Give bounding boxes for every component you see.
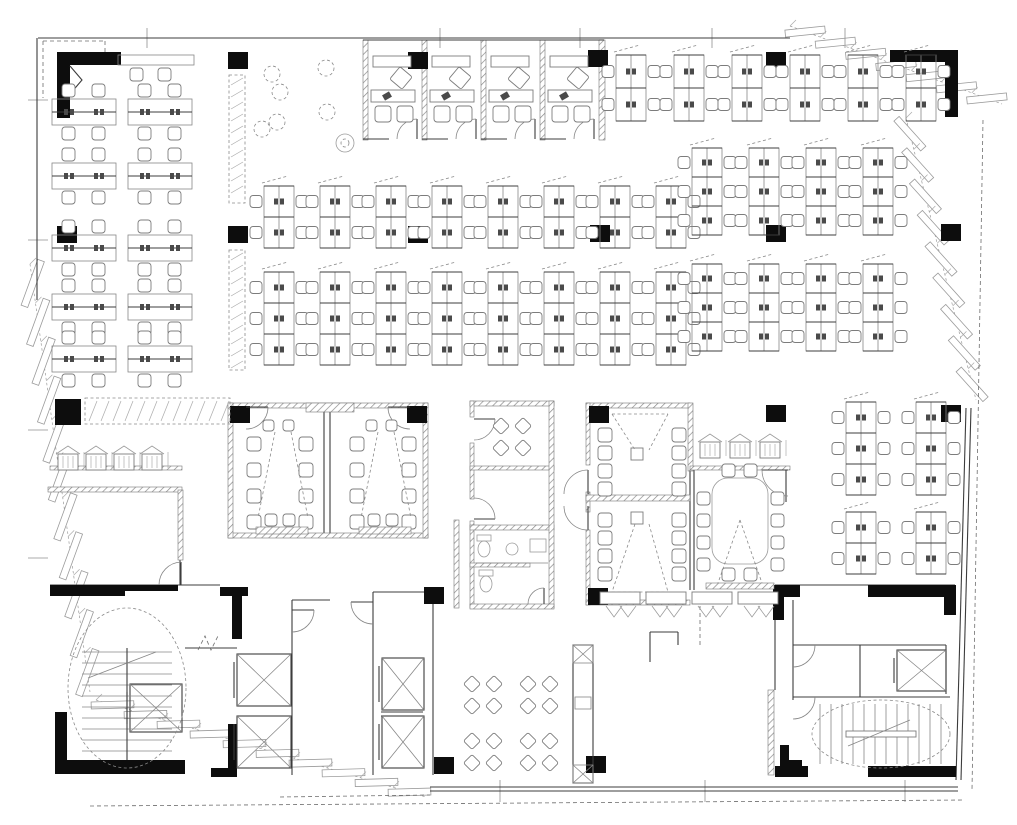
diamond-chair (542, 676, 559, 693)
locker-slash (209, 401, 217, 421)
task-chair (880, 66, 892, 78)
monitor-icon (632, 102, 636, 108)
monitor-icon (626, 69, 630, 75)
task-chair (878, 474, 890, 486)
monitor-icon (554, 199, 558, 205)
task-chair (948, 443, 960, 455)
task-chair (878, 522, 890, 534)
credenza (550, 56, 588, 67)
task-chair (735, 215, 747, 227)
guest-chair (493, 106, 509, 122)
task-chair (948, 522, 960, 534)
monitor-icon (140, 245, 144, 251)
monitor-icon (70, 109, 74, 115)
monitor-icon (176, 109, 180, 115)
monitor-icon (879, 334, 883, 340)
task-chair (735, 273, 747, 285)
task-chair (718, 66, 730, 78)
training-chair (368, 514, 380, 526)
guest-chair (515, 106, 531, 122)
monitor-icon (146, 245, 150, 251)
diamond-chair (515, 418, 532, 435)
training-chair (299, 463, 313, 477)
monitor-icon (64, 304, 68, 310)
locker-slash (101, 401, 109, 421)
monitor-icon (448, 316, 452, 322)
conference-chair (598, 549, 612, 563)
desk-strip-tag (486, 262, 512, 269)
task-chair (849, 331, 861, 343)
monitor-icon (822, 218, 826, 224)
task-chair (834, 99, 846, 111)
monitor-icon (708, 276, 712, 282)
monitor-icon (70, 304, 74, 310)
column (589, 406, 609, 423)
desk-strip-tag (914, 502, 940, 509)
desk-strip-tag (844, 502, 870, 509)
task-chair (168, 331, 181, 344)
task-chair (62, 127, 75, 140)
lounge-chair (272, 84, 288, 100)
desk-strip-tag (654, 176, 680, 183)
guest-chair (375, 106, 391, 122)
desk-strip-tag (861, 138, 887, 145)
task-chair (776, 66, 788, 78)
task-chair (781, 215, 793, 227)
monitor-icon (632, 69, 636, 75)
desk-strip-tag (262, 262, 288, 269)
monitor-icon (386, 316, 390, 322)
task-chair (902, 443, 914, 455)
task-chair (832, 553, 844, 565)
shear-wall (55, 760, 185, 774)
task-chair (878, 553, 890, 565)
facade-joint-tick (96, 694, 102, 700)
monitor-icon (765, 276, 769, 282)
monitor-icon (748, 102, 752, 108)
desk-strip-tag (374, 176, 400, 183)
hatched-wall (470, 525, 554, 530)
monitor-icon (560, 316, 564, 322)
monitor-icon (442, 285, 446, 291)
presentation-screen (359, 527, 411, 534)
monitor-icon (879, 160, 883, 166)
locker-slash (231, 277, 243, 284)
monitor-icon (498, 230, 502, 236)
monitor-icon (94, 304, 98, 310)
monitor-icon (862, 556, 866, 562)
task-chair (602, 66, 614, 78)
guest-chair (456, 106, 472, 122)
task-chair (62, 279, 75, 292)
conference-chair (672, 567, 686, 581)
monitor-icon (666, 285, 670, 291)
task-chair (832, 522, 844, 534)
monitor-icon (280, 199, 284, 205)
lounge-chair (264, 66, 280, 82)
monitor-icon (702, 305, 706, 311)
monitor-icon (140, 109, 144, 115)
toilet (480, 576, 492, 592)
monitor-icon (146, 173, 150, 179)
meeting-chair (771, 536, 784, 549)
task-chair (130, 68, 143, 81)
diamond-chair (520, 698, 537, 715)
guest-chair (397, 106, 413, 122)
hatched-wall (768, 690, 774, 775)
task-chair (306, 282, 318, 294)
monitor-icon (816, 276, 820, 282)
task-chair (660, 99, 672, 111)
task-chair (822, 66, 834, 78)
facade-panel (70, 610, 93, 658)
monitor-icon (864, 102, 868, 108)
plan-layers (21, 20, 1007, 806)
task-chair (706, 99, 718, 111)
monitor-icon (610, 347, 614, 353)
hatched-wall (540, 40, 545, 140)
locker-slash (231, 78, 243, 85)
task-chair (474, 282, 486, 294)
locker-slash (231, 289, 243, 296)
task-chair (724, 273, 736, 285)
task-chair (832, 412, 844, 424)
shear-wall (211, 768, 237, 777)
monitor-icon (330, 347, 334, 353)
training-chair (247, 489, 261, 503)
monitor-icon (690, 102, 694, 108)
monitor-icon (916, 102, 920, 108)
cabinet-marker-roof (112, 446, 136, 454)
training-chair (350, 489, 364, 503)
desk-strip-tag (844, 392, 870, 399)
training-chair (402, 463, 416, 477)
monitor-icon (70, 356, 74, 362)
training-chair (366, 420, 377, 431)
desk-strip-tag (542, 262, 568, 269)
monitor-icon (94, 173, 98, 179)
monitor-icon (64, 356, 68, 362)
toilet (478, 541, 490, 557)
diamond-chair (520, 676, 537, 693)
monitor-icon (94, 109, 98, 115)
task-chair (792, 331, 804, 343)
monitor-icon (666, 199, 670, 205)
diamond-chair (515, 440, 532, 457)
diamond-chair (464, 755, 481, 772)
facade-panel (948, 336, 980, 370)
plant-symbol (336, 134, 354, 152)
guest-chair (552, 106, 568, 122)
desk-strip-tag (614, 45, 640, 52)
monitor-icon (498, 316, 502, 322)
task-chair (838, 157, 850, 169)
cabinet-marker-roof (56, 446, 80, 454)
monitor-icon (873, 218, 877, 224)
monitor-icon (759, 276, 763, 282)
hatched-wall (228, 403, 233, 538)
facade-joint-tick (790, 20, 796, 26)
task-chair (250, 282, 262, 294)
flip-chair-symbol (620, 606, 636, 617)
task-chair (648, 99, 660, 111)
task-chair (781, 302, 793, 314)
task-chair (735, 186, 747, 198)
monitor-icon (926, 556, 930, 562)
training-chair (263, 420, 274, 431)
task-chair (849, 157, 861, 169)
monitor-icon (392, 316, 396, 322)
monitor-icon (504, 285, 508, 291)
meeting-chair (722, 464, 735, 477)
desk-strip-tag (598, 262, 624, 269)
monitor-icon (759, 334, 763, 340)
task-chair (792, 302, 804, 314)
locker-slash (185, 401, 193, 421)
monitor-icon (616, 230, 620, 236)
desk-strip-tag (690, 254, 716, 261)
monitor-icon (392, 347, 396, 353)
monitor-icon (176, 173, 180, 179)
task-chair (902, 474, 914, 486)
presentation-screen (706, 583, 774, 589)
diamond-chair (486, 698, 503, 715)
cabinet-marker-roof (698, 434, 722, 442)
shear-wall (123, 585, 178, 591)
conference-chair (598, 513, 612, 527)
monitor-icon (765, 189, 769, 195)
hatched-wall (688, 403, 693, 471)
monitor-icon (684, 102, 688, 108)
column (434, 757, 454, 774)
conference-chair (672, 428, 686, 442)
monitor-icon (806, 69, 810, 75)
diamond-chair (542, 733, 559, 750)
locker-slash (113, 401, 121, 421)
lounge-chair (269, 114, 285, 130)
task-chair (62, 84, 75, 97)
monitor-icon (702, 334, 706, 340)
monitor-icon (100, 245, 104, 251)
task-chair (838, 186, 850, 198)
facade-joint-tick (46, 375, 52, 381)
executive-chair (390, 67, 413, 90)
monitor-icon (702, 189, 706, 195)
training-chair (299, 489, 313, 503)
monitor-icon (626, 102, 630, 108)
monitor-icon (610, 316, 614, 322)
monitor-icon (862, 415, 866, 421)
task-chair (250, 196, 262, 208)
task-chair (878, 443, 890, 455)
conference-table-outline (612, 524, 668, 592)
facade-panel (27, 298, 50, 346)
monitor-icon (822, 276, 826, 282)
locker-strip (85, 398, 230, 424)
task-chair (92, 263, 105, 276)
monitor-icon (926, 446, 930, 452)
desk-strip-tag (430, 176, 456, 183)
monitor-icon (816, 218, 820, 224)
facade-panel (355, 778, 398, 786)
task-chair (688, 344, 700, 356)
desk-strip-tag (374, 262, 400, 269)
monitor-icon (442, 199, 446, 205)
monitor-icon (336, 285, 340, 291)
monitor-icon (742, 102, 746, 108)
monitor-icon (822, 160, 826, 166)
monitor-icon (392, 285, 396, 291)
task-chair (586, 227, 598, 239)
task-chair (792, 186, 804, 198)
locker-slash (231, 313, 243, 320)
monitor-icon (858, 69, 862, 75)
task-chair (642, 313, 654, 325)
flip-chair-symbol (698, 606, 714, 617)
facade-joint-tick (35, 297, 41, 303)
meeting-chair (771, 492, 784, 505)
monitor-icon (100, 356, 104, 362)
monitor-icon (146, 356, 150, 362)
task-chair (706, 66, 718, 78)
conference-chair (598, 446, 612, 460)
task-chair (92, 220, 105, 233)
monitor-icon (932, 415, 936, 421)
facade-panel (894, 116, 926, 150)
training-chair (402, 437, 416, 451)
task-chair (838, 215, 850, 227)
task-chair (92, 84, 105, 97)
diamond-chair (542, 698, 559, 715)
training-chair (247, 463, 261, 477)
office-desk (489, 90, 533, 102)
locker-slash (231, 265, 243, 272)
door-swing-arc (292, 610, 314, 632)
training-chair (265, 514, 277, 526)
conference-chair (672, 549, 686, 563)
monitor-icon (94, 245, 98, 251)
task-chair (678, 186, 690, 198)
training-chair (386, 420, 397, 431)
monitor-icon (498, 347, 502, 353)
executive-chair (567, 67, 590, 90)
dashed-boundary (90, 800, 965, 806)
task-chair (781, 157, 793, 169)
conference-chair (672, 531, 686, 545)
desk-strip-tag (861, 254, 887, 261)
monitor-icon (690, 69, 694, 75)
credenza (432, 56, 470, 67)
task-chair (892, 66, 904, 78)
training-chair (247, 437, 261, 451)
task-chair (642, 344, 654, 356)
office-desk (371, 90, 415, 102)
facade-joint-tick (906, 112, 912, 118)
wall (956, 408, 966, 780)
shear-wall (55, 712, 67, 774)
task-chair (306, 313, 318, 325)
task-chair (895, 186, 907, 198)
diamond-chair (520, 733, 537, 750)
task-chair (530, 313, 542, 325)
monitor-icon (759, 305, 763, 311)
conference-chair (672, 446, 686, 460)
wall (961, 408, 971, 780)
task-chair (530, 282, 542, 294)
monitor-icon (560, 347, 564, 353)
meeting-chair (697, 492, 710, 505)
task-chair (418, 344, 430, 356)
conference-chair (598, 464, 612, 478)
locker-slash (231, 174, 243, 181)
flip-chair-symbol (666, 606, 682, 617)
locker-slash (231, 114, 243, 121)
monitor-icon (873, 160, 877, 166)
facade-panel (54, 493, 77, 541)
task-chair (586, 282, 598, 294)
task-chair (895, 273, 907, 285)
cabinet-marker-roof (758, 434, 782, 442)
monitor-icon (140, 173, 144, 179)
monitor-icon (932, 556, 936, 562)
task-chair (660, 66, 672, 78)
monitor-icon (70, 173, 74, 179)
monitor-icon (610, 230, 614, 236)
plant-symbol-inner (341, 139, 349, 147)
diamond-chair (486, 733, 503, 750)
monitor-icon (554, 230, 558, 236)
monitor-icon (822, 305, 826, 311)
monitor-icon (498, 285, 502, 291)
monitor-icon (386, 285, 390, 291)
meeting-chair (744, 464, 757, 477)
monitor-icon (100, 109, 104, 115)
hatched-wall (470, 443, 474, 499)
monitor-icon (873, 276, 877, 282)
monitor-icon (442, 230, 446, 236)
task-chair (838, 273, 850, 285)
conference-chair (672, 482, 686, 496)
training-chair (350, 463, 364, 477)
desk-strip-tag (788, 45, 814, 52)
monitor-icon (330, 230, 334, 236)
monitor-icon (666, 347, 670, 353)
locker-slash (231, 325, 243, 332)
monitor-icon (922, 69, 926, 75)
locker-slash (149, 401, 157, 421)
task-chair (764, 99, 776, 111)
task-chair (602, 99, 614, 111)
facade-panel (909, 179, 941, 213)
hatched-wall (690, 466, 790, 470)
locker-strip (229, 250, 245, 370)
task-chair (849, 186, 861, 198)
task-chair (250, 227, 262, 239)
monitor-icon (759, 189, 763, 195)
folding-table (738, 592, 778, 604)
task-chair (138, 279, 151, 292)
column (766, 225, 786, 242)
task-chair (849, 302, 861, 314)
task-chair (832, 474, 844, 486)
monitor-icon (926, 415, 930, 421)
monitor-icon (392, 230, 396, 236)
task-chair (792, 215, 804, 227)
monitor-icon (554, 285, 558, 291)
locker-slash (89, 401, 97, 421)
task-chair (834, 66, 846, 78)
monitor-icon (610, 285, 614, 291)
